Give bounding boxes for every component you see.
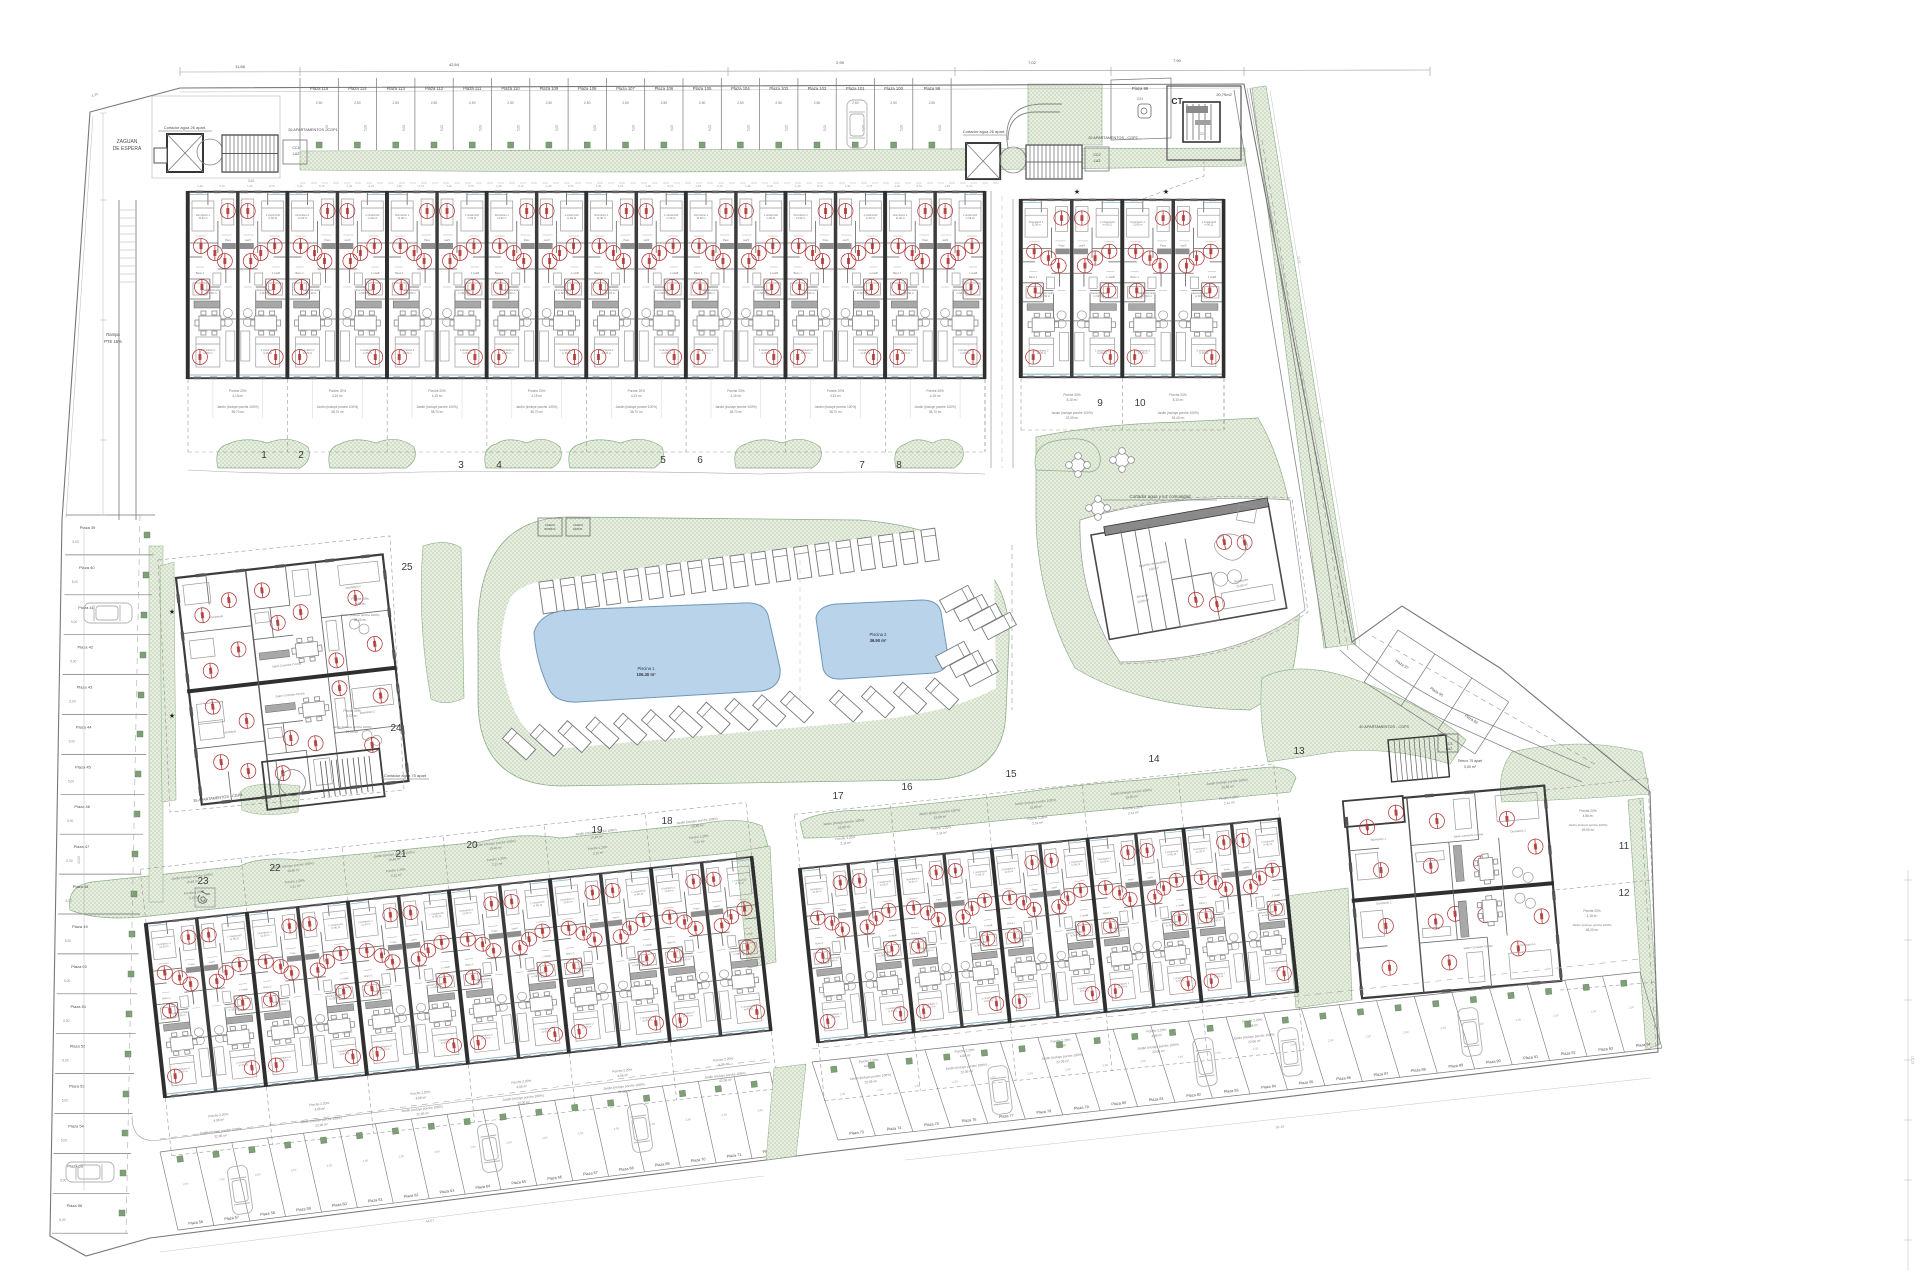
- svg-text:Porche 20%: Porche 20%: [727, 389, 745, 393]
- svg-text:Plaza 110: Plaza 110: [501, 86, 520, 91]
- svg-text:38,70 m²: 38,70 m²: [730, 410, 743, 414]
- svg-text:14: 14: [1148, 754, 1160, 765]
- svg-text:12: 12: [1618, 888, 1630, 899]
- svg-text:Plaza 51: Plaza 51: [71, 1004, 87, 1009]
- svg-text:Plaza 40: Plaza 40: [79, 565, 95, 570]
- svg-text:5,00: 5,00: [59, 1218, 65, 1222]
- svg-text:4,15 m²: 4,15 m²: [531, 394, 542, 398]
- svg-text:3: 3: [458, 460, 464, 471]
- svg-text:0,72: 0,72: [518, 184, 524, 188]
- svg-text:2,50: 2,50: [839, 1092, 845, 1097]
- svg-text:0,72: 0,72: [767, 184, 773, 188]
- svg-text:CC2: CC2: [1093, 153, 1100, 157]
- svg-text:★: ★: [169, 712, 175, 720]
- svg-text:Porche 20%: Porche 20%: [229, 389, 247, 393]
- svg-text:4,15 m²: 4,15 m²: [830, 394, 841, 398]
- svg-text:5,00: 5,00: [66, 859, 72, 863]
- svg-text:1,40: 1,40: [396, 184, 402, 188]
- svg-text:0,72: 0,72: [418, 184, 424, 188]
- svg-text:2,50: 2,50: [327, 1163, 333, 1168]
- svg-text:0,72: 0,72: [817, 184, 823, 188]
- svg-text:Plaza 101: Plaza 101: [846, 86, 865, 91]
- svg-text:8: 8: [896, 460, 902, 471]
- svg-text:20,00 m²: 20,00 m²: [346, 730, 359, 734]
- svg-text:4,15 m²: 4,15 m²: [1587, 914, 1598, 918]
- svg-text:4,56 m²: 4,56 m²: [1583, 814, 1594, 818]
- svg-text:3,00 m²: 3,00 m²: [1464, 765, 1477, 769]
- svg-text:Plaza 45: Plaza 45: [75, 764, 91, 769]
- svg-text:0,72: 0,72: [568, 184, 574, 188]
- svg-text:18: 18: [661, 816, 673, 827]
- svg-text:38,70 m²: 38,70 m²: [630, 410, 643, 414]
- svg-text:2,50: 2,50: [219, 1177, 225, 1182]
- svg-text:Plaza 48: Plaza 48: [73, 884, 89, 889]
- svg-text:Porche 20%: Porche 20%: [1579, 809, 1597, 813]
- svg-text:1,40: 1,40: [944, 184, 950, 188]
- svg-text:7: 7: [859, 460, 865, 471]
- svg-text:5,00: 5,00: [746, 125, 750, 131]
- svg-text:Contador agua 75 apart: Contador agua 75 apart: [384, 773, 427, 778]
- svg-text:2,50: 2,50: [1365, 1034, 1371, 1039]
- svg-text:2,50: 2,50: [1553, 1013, 1559, 1018]
- svg-text:2,50: 2,50: [721, 1112, 727, 1117]
- svg-text:7,02: 7,02: [1028, 60, 1037, 65]
- svg-text:2,50: 2,50: [890, 101, 897, 105]
- svg-text:Plaza 46: Plaza 46: [74, 804, 90, 809]
- svg-text:0,72: 0,72: [219, 184, 225, 188]
- svg-text:5,00: 5,00: [938, 125, 942, 131]
- svg-text:2,50: 2,50: [434, 1149, 440, 1154]
- svg-text:2,50: 2,50: [699, 101, 706, 105]
- svg-text:2,50: 2,50: [398, 1154, 404, 1159]
- svg-text:Plaza 107: Plaza 107: [616, 86, 635, 91]
- svg-text:CC1: CC1: [292, 146, 299, 150]
- svg-text:5,00: 5,00: [65, 939, 71, 943]
- svg-text:Plaza 108: Plaza 108: [578, 86, 597, 91]
- svg-text:5,00: 5,00: [708, 125, 712, 131]
- svg-text:92,40 m²: 92,40 m²: [1172, 416, 1185, 420]
- svg-text:3,51: 3,51: [1137, 97, 1144, 101]
- svg-text:Porche 20%: Porche 20%: [351, 597, 369, 601]
- svg-text:2,50: 2,50: [661, 101, 668, 105]
- svg-text:6: 6: [697, 455, 703, 466]
- svg-text:5,00: 5,00: [861, 125, 865, 131]
- svg-text:4,15 m²: 4,15 m²: [332, 394, 343, 398]
- svg-text:5,00: 5,00: [632, 125, 636, 131]
- svg-text:2,50: 2,50: [1215, 1050, 1221, 1055]
- svg-text:2,50: 2,50: [757, 1108, 763, 1113]
- svg-text:1,40: 1,40: [895, 184, 901, 188]
- svg-text:5,00: 5,00: [63, 1019, 69, 1023]
- svg-text:DEPUR.: DEPUR.: [573, 527, 583, 531]
- svg-text:1,40: 1,40: [247, 184, 253, 188]
- svg-text:4,15 m²: 4,15 m²: [631, 394, 642, 398]
- svg-text:Jardín (incluye porche 100%): Jardín (incluye porche 100%): [1572, 923, 1611, 927]
- svg-text:1,40: 1,40: [845, 184, 851, 188]
- svg-text:Jardín (incluye porche 100%): Jardín (incluye porche 100%): [1157, 411, 1198, 415]
- svg-text:Plaza 43: Plaza 43: [77, 685, 93, 690]
- svg-text:21: 21: [395, 849, 407, 860]
- svg-text:Plaza 114: Plaza 114: [348, 86, 367, 91]
- svg-text:2,50: 2,50: [1102, 1063, 1108, 1068]
- svg-text:Piscina 1: Piscina 1: [638, 666, 656, 671]
- svg-text:26 APARTAMENTOS - CGP2: 26 APARTAMENTOS - CGP2: [1088, 136, 1138, 140]
- svg-text:17,57: 17,57: [1911, 1056, 1915, 1064]
- svg-text:Teleco 75 apart: Teleco 75 apart: [1458, 759, 1483, 763]
- svg-text:7,90: 7,90: [1173, 58, 1182, 63]
- svg-text:1,40: 1,40: [297, 184, 303, 188]
- svg-text:Plaza 103: Plaza 103: [769, 86, 788, 91]
- svg-text:0,72: 0,72: [269, 184, 275, 188]
- svg-text:0,72: 0,72: [966, 184, 972, 188]
- svg-text:2,50: 2,50: [183, 1181, 189, 1186]
- svg-text:2,50: 2,50: [1027, 1071, 1033, 1076]
- svg-text:CASETA: CASETA: [573, 523, 583, 527]
- svg-text:1,40: 1,40: [496, 184, 502, 188]
- svg-text:Plaza 53: Plaza 53: [69, 1084, 85, 1089]
- svg-text:5,00: 5,00: [555, 125, 559, 131]
- svg-text:2,50: 2,50: [614, 1126, 620, 1131]
- svg-text:5,00: 5,00: [67, 819, 73, 823]
- svg-text:2,50: 2,50: [584, 101, 591, 105]
- svg-text:5,00: 5,00: [62, 1059, 68, 1063]
- svg-text:2,50: 2,50: [685, 1117, 691, 1122]
- svg-text:2,50: 2,50: [775, 101, 782, 105]
- svg-text:Plaza 56: Plaza 56: [67, 1203, 83, 1208]
- svg-text:Porche 20%: Porche 20%: [329, 389, 347, 393]
- svg-text:2,50: 2,50: [291, 1168, 297, 1173]
- svg-text:16: 16: [901, 782, 913, 793]
- svg-text:5,00: 5,00: [363, 125, 367, 131]
- svg-text:5,00: 5,00: [60, 1178, 66, 1182]
- svg-text:4,15 m²: 4,15 m²: [730, 394, 741, 398]
- svg-text:0,72: 0,72: [319, 184, 325, 188]
- svg-text:BOMBAS: BOMBAS: [544, 527, 555, 531]
- svg-text:2,50: 2,50: [852, 101, 859, 105]
- svg-text:9: 9: [1097, 398, 1103, 409]
- svg-text:38,70 m²: 38,70 m²: [331, 410, 344, 414]
- svg-text:48,20 m²: 48,20 m²: [1586, 928, 1599, 932]
- svg-text:5,00: 5,00: [68, 779, 74, 783]
- svg-text:2,50: 2,50: [737, 101, 744, 105]
- svg-text:23: 23: [197, 876, 209, 887]
- svg-text:Rampa: Rampa: [106, 332, 120, 337]
- svg-text:2,50: 2,50: [316, 101, 323, 105]
- svg-text:2,50: 2,50: [470, 1145, 476, 1150]
- svg-text:Plaza 112: Plaza 112: [425, 86, 444, 91]
- svg-text:0,72: 0,72: [917, 184, 923, 188]
- svg-text:17: 17: [832, 791, 844, 802]
- svg-text:Porche 20%: Porche 20%: [428, 389, 446, 393]
- svg-text:Plaza 54: Plaza 54: [68, 1124, 84, 1129]
- svg-text:Plaza 113: Plaza 113: [387, 86, 406, 91]
- svg-text:CC: CC: [1200, 132, 1205, 136]
- svg-text:1,40: 1,40: [646, 184, 652, 188]
- svg-text:2,50: 2,50: [622, 101, 629, 105]
- svg-text:36.90 m²: 36.90 m²: [870, 638, 887, 643]
- svg-text:2,50: 2,50: [255, 1172, 261, 1177]
- svg-text:22,09 m²: 22,09 m²: [1066, 416, 1079, 420]
- svg-text:5,00: 5,00: [72, 540, 78, 544]
- svg-text:Jardín (incluye porche 100%): Jardín (incluye porche 100%): [332, 725, 371, 729]
- svg-text:38,70 m²: 38,70 m²: [929, 410, 942, 414]
- svg-text:2,50: 2,50: [877, 1088, 883, 1093]
- svg-text:4,15 m²: 4,15 m²: [930, 394, 941, 398]
- svg-text:4,00 m²: 4,00 m²: [355, 602, 366, 606]
- svg-text:Plaza 47: Plaza 47: [74, 844, 90, 849]
- svg-text:42,64: 42,64: [449, 62, 460, 67]
- svg-text:Porche 20%: Porche 20%: [528, 389, 546, 393]
- svg-text:Porche 20%: Porche 20%: [343, 709, 361, 713]
- svg-text:Jardín (incluye porche 100%): Jardín (incluye porche 100%): [1051, 411, 1092, 415]
- svg-text:5,00: 5,00: [823, 125, 827, 131]
- svg-text:Plaza 115: Plaza 115: [310, 86, 329, 91]
- svg-text:1,40: 1,40: [596, 184, 602, 188]
- svg-text:0,72: 0,72: [867, 184, 873, 188]
- svg-text:5: 5: [660, 455, 666, 466]
- svg-text:1: 1: [261, 450, 267, 461]
- svg-text:LUZ: LUZ: [1094, 159, 1102, 163]
- svg-text:15: 15: [1005, 769, 1017, 780]
- svg-text:4,07 m²: 4,07 m²: [347, 714, 358, 718]
- svg-text:2,50: 2,50: [362, 1158, 368, 1163]
- svg-text:Plaza 100: Plaza 100: [884, 86, 903, 91]
- svg-text:2,50: 2,50: [952, 1079, 958, 1084]
- svg-text:★: ★: [169, 608, 175, 616]
- svg-text:2,50: 2,50: [929, 101, 936, 105]
- svg-text:Piscina 2: Piscina 2: [870, 632, 888, 637]
- svg-text:0,72: 0,72: [668, 184, 674, 188]
- svg-text:5,00: 5,00: [69, 700, 75, 704]
- svg-text:LUZ: LUZ: [293, 152, 301, 156]
- svg-text:1,40: 1,40: [197, 184, 203, 188]
- svg-text:22: 22: [269, 863, 281, 874]
- svg-text:2,50: 2,50: [546, 101, 553, 105]
- svg-text:38,70 m²: 38,70 m²: [431, 410, 444, 414]
- svg-text:1,40: 1,40: [546, 184, 552, 188]
- svg-text:Jardín (incluye porche 100%): Jardín (incluye porche 100%): [1568, 823, 1607, 827]
- svg-text:PTE 16%: PTE 16%: [104, 339, 122, 344]
- svg-text:Porche 20%: Porche 20%: [1583, 909, 1601, 913]
- svg-text:38,70 m²: 38,70 m²: [232, 410, 245, 414]
- svg-text:36,00 m²: 36,00 m²: [354, 618, 367, 622]
- svg-text:Cortador agua 26 apart.: Cortador agua 26 apart.: [963, 129, 1005, 134]
- svg-text:2,50: 2,50: [578, 1131, 584, 1136]
- svg-text:5,00: 5,00: [478, 125, 482, 131]
- svg-text:2,50: 2,50: [1328, 1038, 1334, 1043]
- svg-text:Plaza 106: Plaza 106: [655, 86, 674, 91]
- svg-text:5,00: 5,00: [65, 899, 71, 903]
- svg-text:25: 25: [401, 562, 413, 573]
- svg-text:Plaza 50: Plaza 50: [71, 964, 87, 969]
- svg-text:1,40: 1,40: [745, 184, 751, 188]
- svg-text:Jardín (incluye porche 100%): Jardín (incluye porche 100%): [516, 405, 557, 409]
- svg-text:20,06: 20,06: [77, 856, 81, 864]
- svg-text:Jardín (incluye porche 100%): Jardín (incluye porche 100%): [715, 405, 756, 409]
- svg-text:★: ★: [1074, 188, 1080, 196]
- svg-text:CT: CT: [1171, 96, 1183, 106]
- svg-text:Plaza 105: Plaza 105: [693, 86, 712, 91]
- svg-text:CC3: CC3: [1446, 742, 1453, 746]
- svg-text:LUZ: LUZ: [1446, 747, 1452, 751]
- svg-text:11,68: 11,68: [235, 64, 245, 69]
- svg-text:Plaza 104: Plaza 104: [731, 86, 750, 91]
- svg-text:2,50: 2,50: [431, 101, 438, 105]
- svg-text:38,70 m²: 38,70 m²: [829, 410, 842, 414]
- svg-text:2,50: 2,50: [649, 1122, 655, 1127]
- svg-text:5,00: 5,00: [517, 125, 521, 131]
- svg-text:5,00: 5,00: [69, 740, 75, 744]
- svg-text:Plaza 42: Plaza 42: [78, 645, 94, 650]
- svg-text:2,50: 2,50: [1403, 1030, 1409, 1035]
- svg-text:11: 11: [1619, 841, 1630, 852]
- svg-text:2,50: 2,50: [1140, 1059, 1146, 1064]
- svg-text:2,50: 2,50: [469, 101, 476, 105]
- svg-text:13: 13: [1293, 746, 1305, 757]
- svg-text:2,50: 2,50: [507, 101, 514, 105]
- svg-text:20: 20: [466, 840, 478, 851]
- svg-text:2,50: 2,50: [354, 101, 361, 105]
- svg-text:Jardín (incluye porche 100%): Jardín (incluye porche 100%): [815, 405, 856, 409]
- svg-text:2,50: 2,50: [1177, 1054, 1183, 1059]
- svg-text:Plaza 111: Plaza 111: [463, 86, 482, 91]
- svg-text:5,00: 5,00: [593, 125, 597, 131]
- svg-text:5,00: 5,00: [64, 979, 70, 983]
- svg-text:2,50: 2,50: [1253, 1046, 1259, 1051]
- svg-text:Jardín (incluye porche 100%): Jardín (incluye porche 100%): [616, 405, 657, 409]
- svg-text:0,72: 0,72: [618, 184, 624, 188]
- svg-text:2,50: 2,50: [392, 101, 399, 105]
- svg-text:19: 19: [591, 825, 603, 836]
- svg-text:3,62: 3,62: [248, 179, 255, 183]
- svg-text:Plaza 99: Plaza 99: [924, 86, 941, 91]
- svg-text:2,50: 2,50: [542, 1135, 548, 1140]
- svg-text:Jardín (incluye porche 100%): Jardín (incluye porche 100%): [217, 405, 258, 409]
- svg-text:ZAGUAN: ZAGUAN: [117, 139, 138, 145]
- svg-text:Plaza 102: Plaza 102: [808, 86, 827, 91]
- svg-text:2,50: 2,50: [915, 1083, 921, 1088]
- svg-text:0,72: 0,72: [717, 184, 723, 188]
- svg-text:5,00: 5,00: [402, 125, 406, 131]
- svg-text:CASETA: CASETA: [545, 523, 555, 527]
- svg-text:Jardín (incluye porche 100%): Jardín (incluye porche 100%): [914, 405, 955, 409]
- svg-text:8,10 m²: 8,10 m²: [1173, 398, 1184, 402]
- svg-text:0,72: 0,72: [468, 184, 474, 188]
- svg-text:5,00: 5,00: [440, 125, 444, 131]
- svg-text:26 APARTAMENTOS - CGP1: 26 APARTAMENTOS - CGP1: [288, 128, 338, 132]
- svg-text:Plaza 98: Plaza 98: [1132, 86, 1149, 91]
- svg-text:5,00: 5,00: [900, 125, 904, 131]
- svg-text:5,00: 5,00: [72, 580, 78, 584]
- svg-text:Porche 20%: Porche 20%: [1169, 393, 1187, 397]
- svg-text:10: 10: [1134, 398, 1146, 409]
- svg-text:5,00: 5,00: [785, 125, 789, 131]
- svg-text:Porche 20%: Porche 20%: [927, 389, 945, 393]
- svg-text:DE ESPERA: DE ESPERA: [113, 146, 142, 152]
- svg-text:2,50: 2,50: [814, 101, 821, 105]
- svg-text:Plaza 52: Plaza 52: [70, 1044, 86, 1049]
- svg-text:40 APARTAMENTOS - CGP3: 40 APARTAMENTOS - CGP3: [1359, 725, 1409, 729]
- svg-text:★: ★: [1163, 188, 1169, 196]
- svg-text:1,40: 1,40: [347, 184, 353, 188]
- svg-text:49,90 m²: 49,90 m²: [1582, 828, 1595, 832]
- svg-text:2,50: 2,50: [1628, 1005, 1634, 1010]
- svg-text:2: 2: [298, 450, 304, 461]
- svg-text:Cortador agua 26 apart.: Cortador agua 26 apart.: [164, 125, 206, 130]
- svg-text:5,00: 5,00: [670, 125, 674, 131]
- svg-text:4,15 m²: 4,15 m²: [232, 394, 243, 398]
- svg-text:2,50: 2,50: [1065, 1067, 1071, 1072]
- svg-text:Plaza 41: Plaza 41: [78, 605, 94, 610]
- svg-text:Plaza 39: Plaza 39: [80, 525, 96, 530]
- svg-text:106.30 m²: 106.30 m²: [636, 672, 656, 677]
- svg-text:1,40: 1,40: [795, 184, 801, 188]
- svg-text:38,70 m²: 38,70 m²: [530, 410, 543, 414]
- svg-text:Cortador agua y luz comunidad: Cortador agua y luz comunidad: [1129, 494, 1191, 499]
- svg-text:Porche 20%: Porche 20%: [1063, 393, 1081, 397]
- svg-text:8,10 m²: 8,10 m²: [1067, 398, 1078, 402]
- svg-text:Plaza 49: Plaza 49: [72, 924, 88, 929]
- svg-text:2,50: 2,50: [1515, 1017, 1521, 1022]
- svg-text:4: 4: [496, 460, 502, 471]
- svg-text:0,72: 0,72: [369, 184, 375, 188]
- svg-text:Porche 20%: Porche 20%: [628, 389, 646, 393]
- svg-text:1,40: 1,40: [446, 184, 452, 188]
- svg-text:4,15 m²: 4,15 m²: [432, 394, 443, 398]
- svg-text:2,50: 2,50: [1440, 1026, 1446, 1031]
- svg-text:2,50: 2,50: [506, 1140, 512, 1145]
- svg-text:Porche 20%: Porche 20%: [827, 389, 845, 393]
- svg-text:Plaza 109: Plaza 109: [540, 86, 559, 91]
- svg-text:Jardín (incluye porche 100%): Jardín (incluye porche 100%): [416, 405, 457, 409]
- svg-text:20,79m2: 20,79m2: [1216, 92, 1232, 97]
- svg-text:5,00: 5,00: [71, 620, 77, 624]
- svg-text:Jardín (incluye porche 100%): Jardín (incluye porche 100%): [340, 613, 379, 617]
- svg-text:5,00: 5,00: [62, 1099, 68, 1103]
- svg-text:5,00: 5,00: [61, 1139, 67, 1143]
- svg-text:2,50: 2,50: [1591, 1009, 1597, 1014]
- svg-text:Jardín (incluye porche 100%): Jardín (incluye porche 100%): [317, 405, 358, 409]
- svg-text:1,40: 1,40: [695, 184, 701, 188]
- svg-text:2,99: 2,99: [836, 60, 845, 65]
- svg-text:5,00: 5,00: [70, 660, 76, 664]
